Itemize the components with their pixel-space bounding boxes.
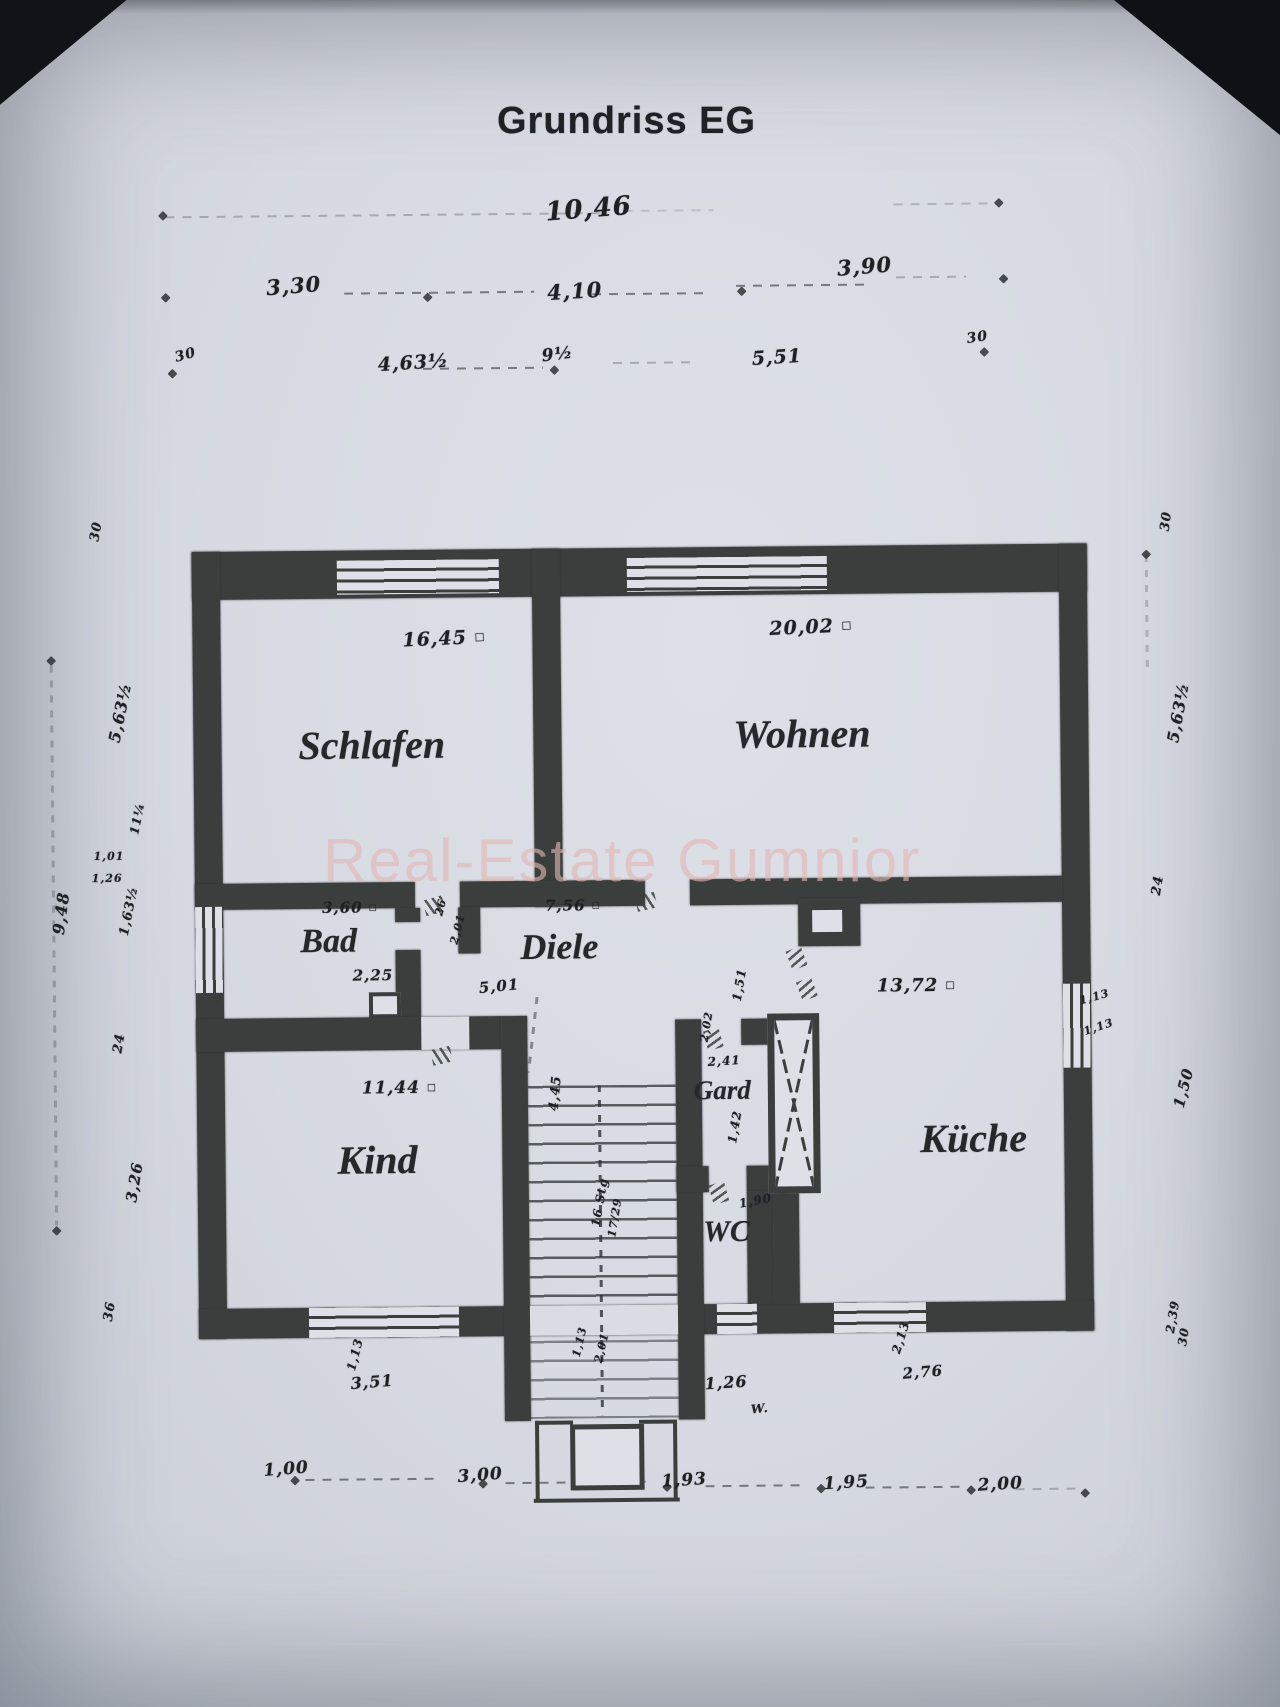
entrance-step	[639, 1419, 677, 1423]
chimney-notch	[812, 910, 842, 932]
window	[717, 1304, 757, 1334]
dim-label: 1,26	[92, 873, 123, 884]
dim-label: 3,00	[457, 1466, 504, 1487]
area-label-kueche: 13,72 □	[877, 977, 955, 996]
dim-label: 1,50	[1172, 1067, 1197, 1110]
dimension-line	[50, 665, 58, 1225]
dimension-line	[1016, 1488, 1076, 1491]
room-label-bad: Bad	[300, 925, 357, 960]
dim-label: 9,48	[51, 891, 72, 936]
door-opening	[530, 1304, 678, 1335]
dim-label: 2,76	[902, 1364, 944, 1382]
dimension-line	[896, 276, 966, 279]
dimension-line	[613, 361, 693, 364]
dim-label-gard-depth: 2,41	[707, 1054, 741, 1068]
dim-label: 24	[1150, 874, 1166, 896]
door-opening	[421, 1016, 469, 1049]
dimension-line	[893, 202, 993, 205]
dim-label: 5,63½	[107, 681, 135, 744]
dimension-tick	[999, 274, 1009, 284]
window	[195, 907, 224, 993]
entrance-step	[535, 1420, 573, 1424]
wall	[773, 1191, 800, 1303]
dim-label: 1,00	[263, 1459, 310, 1480]
dim-label: 1,26	[704, 1374, 748, 1393]
room-label-diele: Diele	[520, 928, 598, 965]
dimension-tick	[52, 1226, 62, 1236]
dimension-tick	[1141, 549, 1151, 559]
dim-label: 30	[88, 521, 104, 543]
dimension-line	[1145, 555, 1149, 675]
dim-label: 3,30	[265, 273, 322, 298]
area-label-bad: 3,60 □	[322, 900, 377, 916]
dim-label: 1,93	[661, 1471, 707, 1491]
dimension-line	[165, 212, 605, 218]
room-label-gard: Gard	[694, 1077, 751, 1105]
dim-label: 5,51	[751, 347, 802, 369]
door-swing-marks	[430, 1046, 453, 1066]
sqm-icon: □	[369, 902, 377, 912]
dimension-line	[306, 1478, 436, 1481]
sqm-icon: □	[945, 980, 954, 991]
dim-label-diele-width: 5,01	[478, 977, 520, 996]
window	[627, 556, 827, 592]
entrance-step	[535, 1421, 540, 1501]
dimension-tick	[46, 656, 56, 666]
dimension-tick	[167, 369, 177, 379]
dimension-arrow	[527, 997, 539, 1073]
dim-label-total-width: 10,46	[544, 193, 632, 226]
dimension-tick	[549, 365, 559, 375]
wall	[747, 1166, 771, 1192]
door-swing-marks	[708, 1181, 729, 1205]
dimension-tick	[737, 286, 747, 296]
dim-label: 30	[1159, 510, 1174, 532]
dim-label: 9½	[541, 345, 574, 365]
window	[309, 1307, 459, 1338]
wall	[501, 1016, 531, 1421]
dim-label: 30	[1176, 1326, 1191, 1346]
area-label-diele: 7,56 □	[545, 898, 600, 914]
sqm-icon: □	[474, 631, 484, 643]
dim-label: 1,01	[94, 851, 125, 862]
dim-label: 1,63½	[118, 885, 141, 937]
dimension-line	[736, 284, 864, 287]
entrance-step	[534, 1497, 680, 1502]
dim-label-gard-width: 1,42	[726, 1110, 743, 1145]
dimension-tick	[979, 347, 989, 357]
dim-label: 5,63½	[1165, 681, 1192, 744]
area-label-kind: 11,44 □	[362, 1080, 436, 1098]
dim-label: W.	[750, 1402, 769, 1416]
dim-label: 3,90	[836, 253, 893, 278]
sqm-icon: □	[592, 900, 600, 910]
dimension-tick	[1080, 1488, 1090, 1498]
dimension-line	[866, 1486, 962, 1489]
room-label-schlafen: Schlafen	[298, 725, 445, 766]
watermark: Real-Estate Gumnior	[323, 826, 921, 895]
entrance-step	[570, 1424, 645, 1491]
chimney-shaft	[767, 1013, 821, 1193]
window	[337, 559, 499, 595]
stair-dim-label: 4,45	[548, 1075, 564, 1112]
area-label-wohnen: 20,02 □	[769, 616, 852, 639]
dim-label: 36	[102, 1300, 118, 1322]
dim-label: 3,51	[350, 1373, 394, 1392]
dim-label: 24	[111, 1032, 127, 1054]
dim-label: 2,00	[977, 1475, 1023, 1495]
dim-label: 30	[173, 346, 197, 365]
wall	[1059, 544, 1095, 1331]
wall	[677, 1166, 709, 1192]
dimension-tick	[994, 198, 1004, 208]
sqm-icon: □	[427, 1082, 436, 1093]
dimension-tick	[161, 293, 171, 303]
dimension-tick	[423, 292, 433, 302]
dimension-line	[592, 292, 710, 295]
dim-label: 4,10	[547, 279, 603, 303]
dim-label: 11¼	[128, 802, 146, 836]
door-swing-marks	[786, 946, 808, 970]
scanned-floor-plan-page: Grundriss EG	[0, 0, 1280, 1707]
dim-label: 30	[966, 329, 989, 346]
dim-label: 26	[433, 897, 448, 917]
door-swing-marks	[796, 977, 818, 1001]
dimension-line	[344, 291, 534, 295]
dim-label-bad-width: 2,25	[353, 968, 394, 983]
dim-label: 3,26	[124, 1161, 145, 1203]
sqm-icon: □	[841, 619, 851, 631]
room-label-wc: WC	[703, 1217, 750, 1247]
dimension-tick	[966, 1485, 976, 1495]
room-label-wohnen: Wohnen	[733, 714, 870, 755]
room-label-kind: Kind	[337, 1140, 417, 1181]
dimension-line	[623, 209, 713, 212]
wall-niche	[369, 992, 401, 1018]
dim-label: 1,95	[823, 1473, 869, 1493]
dimension-line	[706, 1484, 806, 1487]
window	[834, 1302, 926, 1333]
dim-label: 4,63½	[377, 352, 449, 375]
dim-label: 1,13	[345, 1337, 365, 1372]
room-label-kueche: Küche	[920, 1118, 1027, 1159]
wall	[395, 908, 420, 922]
dim-label: 1,51	[731, 967, 748, 1002]
dimension-tick	[158, 211, 168, 221]
shaft-hatch	[774, 1020, 814, 1186]
area-label-schlafen: 16,45 □	[402, 628, 485, 651]
